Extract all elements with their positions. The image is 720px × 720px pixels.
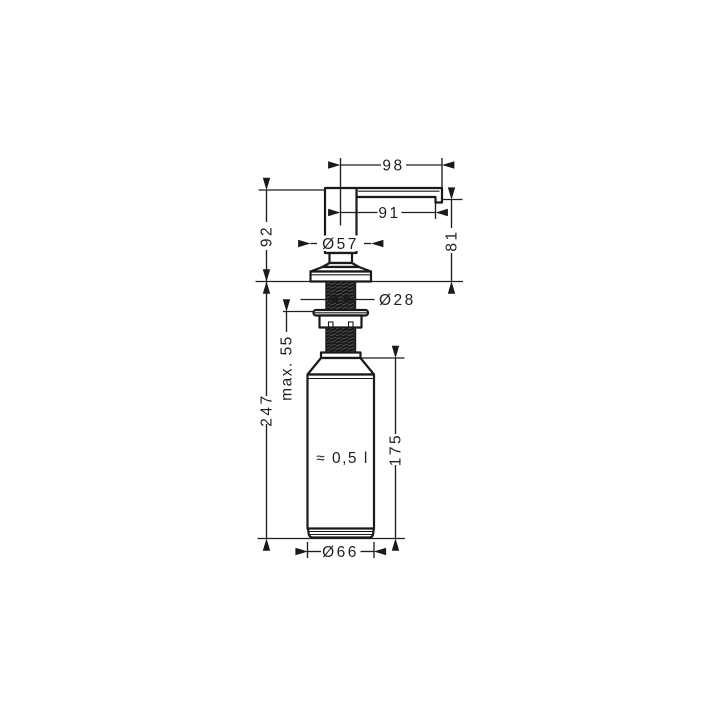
dim-28-label: Ø28: [379, 292, 416, 309]
dim-66-label: Ø66: [322, 544, 359, 561]
head-neck: [330, 253, 353, 263]
bottle-capacity-label: ≈ 0,5 l: [316, 450, 369, 467]
locknut: [320, 316, 362, 328]
dim-81-label: 81: [444, 229, 461, 251]
technical-drawing-page: 98 91 Ø57 81 92 Ø28 max. 55 247 175 ≈ 0,…: [0, 0, 720, 720]
rosette-plate: [311, 272, 372, 282]
soap-dispenser-dimension-drawing: 98 91 Ø57 81 92 Ø28 max. 55 247 175 ≈ 0,…: [0, 0, 720, 720]
dim-91-label: 91: [378, 205, 400, 222]
threaded-shank-lower: [326, 328, 356, 353]
dim-57-label: Ø57: [322, 236, 359, 253]
threaded-shank-upper: [326, 282, 356, 311]
dim-55-label: max. 55: [279, 335, 296, 401]
dim-247-label: 247: [259, 393, 276, 426]
dim-92-label: 92: [259, 225, 276, 247]
dim-175-label: 175: [388, 433, 405, 466]
dim-98-label: 98: [382, 158, 404, 175]
